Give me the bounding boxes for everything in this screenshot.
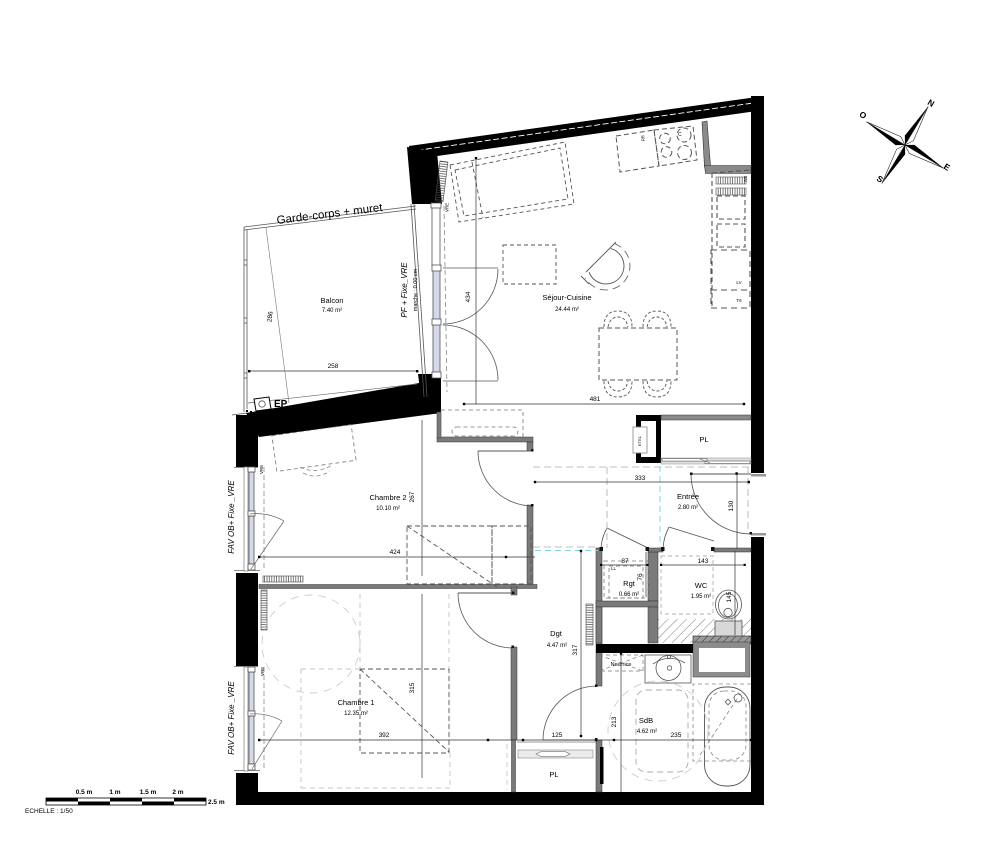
svg-text:2 m: 2 m [172,789,183,796]
svg-text:10.10 m²: 10.10 m² [376,506,400,512]
svg-text:317: 317 [572,644,579,655]
svg-text:Dgt: Dgt [550,629,563,638]
svg-text:Balcon: Balcon [321,296,344,305]
svg-text:1.95 m²: 1.95 m² [691,594,711,600]
svg-text:4.62 m²: 4.62 m² [637,729,657,735]
svg-text:235: 235 [671,732,682,739]
svg-text:PF + Fixe_VRE: PF + Fixe_VRE [400,262,409,318]
svg-text:FAV OB+ Fixe _VRE: FAV OB+ Fixe _VRE [227,480,236,554]
svg-text:4.47 m²: 4.47 m² [547,643,567,649]
svg-text:PL: PL [549,770,558,779]
svg-text:434: 434 [465,291,472,302]
svg-text:EP: EP [274,399,288,410]
svg-text:LL: LL [611,566,617,571]
svg-text:2.80 m²: 2.80 m² [678,505,698,511]
svg-text:VRE: VRE [260,667,265,676]
svg-text:1.5 m: 1.5 m [140,789,157,796]
svg-text:PL: PL [699,435,708,444]
svg-text:ECHELLE : 1/50: ECHELLE : 1/50 [25,808,73,815]
svg-text:258: 258 [328,363,339,370]
svg-text:267: 267 [409,491,416,502]
svg-text:315: 315 [409,682,416,693]
svg-text:392: 392 [379,732,390,739]
svg-text:2.5 m: 2.5 m [208,799,225,806]
svg-text:12.35 m²: 12.35 m² [344,711,368,717]
svg-text:LV: LV [736,280,741,285]
svg-text:Entrée: Entrée [677,492,699,501]
svg-text:130: 130 [728,500,735,511]
svg-text:213: 213 [611,716,618,727]
svg-text:Rgt: Rgt [623,579,636,588]
svg-text:0.5 m: 0.5 m [76,789,93,796]
svg-text:145: 145 [726,591,733,602]
svg-text:481: 481 [590,396,601,403]
svg-text:143: 143 [698,558,709,565]
svg-text:WC: WC [695,581,708,590]
svg-text:286: 286 [266,311,274,323]
svg-text:24.44 m²: 24.44 m² [555,307,579,313]
svg-text:VRE: VRE [259,465,264,474]
svg-text:Séjour-Cuisine: Séjour-Cuisine [542,293,591,302]
svg-text:0.66 m²: 0.66 m² [619,592,639,598]
svg-text:Chambre 2: Chambre 2 [369,493,406,502]
svg-text:424: 424 [390,549,401,556]
svg-text:C: C [678,132,682,138]
svg-text:SdB: SdB [639,716,653,725]
svg-text:125: 125 [552,732,563,739]
svg-text:333: 333 [635,475,646,482]
svg-text:EV: EV [743,176,748,182]
svg-text:VRE: VRE [445,203,450,212]
svg-text:Chambre 1: Chambre 1 [337,698,374,707]
svg-text:76: 76 [637,573,644,581]
svg-text:1 m: 1 m [109,789,120,796]
svg-text:FAV OB+ Fixe _VRE: FAV OB+ Fixe _VRE [227,681,236,755]
svg-text:ETEL: ETEL [637,435,642,446]
svg-text:T6: T6 [736,298,742,303]
svg-text:87: 87 [621,558,629,565]
svg-text:7.40 m²: 7.40 m² [322,308,342,314]
svg-text:marche : 0.00 cm: marche : 0.00 cm [413,268,419,311]
